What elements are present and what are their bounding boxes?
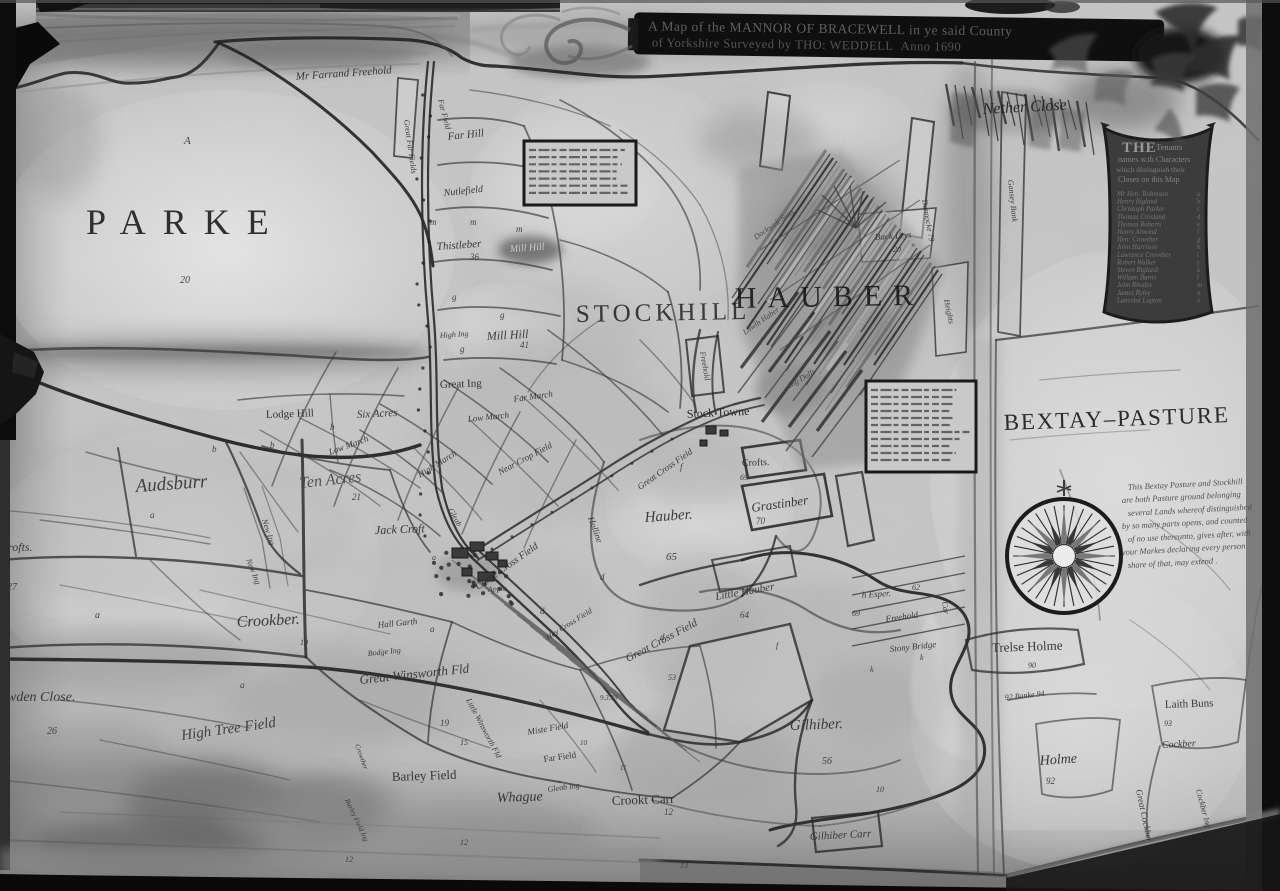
svg-text:Christoph Parker: Christoph Parker [1117, 206, 1165, 213]
svg-text:69: 69 [740, 473, 748, 482]
svg-text:g: g [1197, 237, 1201, 244]
svg-text:Hen: Crowther: Hen: Crowther [1116, 237, 1158, 244]
svg-text:h: h [1197, 244, 1201, 251]
svg-text:d: d [540, 606, 545, 616]
svg-text:HAUBER: HAUBER [735, 279, 925, 315]
svg-text:Henry Bigland: Henry Bigland [1116, 199, 1158, 206]
svg-text:THE: THE [1122, 140, 1157, 156]
svg-text:b: b [212, 444, 217, 454]
svg-text:Henry Almond: Henry Almond [1116, 229, 1157, 236]
svg-text:36: 36 [469, 252, 480, 262]
svg-text:d: d [600, 572, 605, 582]
svg-text:i: i [1197, 252, 1199, 259]
svg-text:STOCKHILL: STOCKHILL [576, 298, 751, 328]
svg-text:g: g [452, 292, 457, 302]
svg-text:a: a [240, 680, 245, 690]
svg-text:g: g [500, 310, 505, 320]
svg-text:19: 19 [440, 718, 450, 728]
svg-text:k: k [870, 665, 874, 674]
svg-text:12: 12 [664, 807, 674, 817]
svg-text:m: m [516, 224, 523, 234]
svg-text:12: 12 [345, 855, 353, 864]
svg-text:James Ryley: James Ryley [1117, 290, 1152, 297]
svg-text:l: l [1197, 275, 1199, 282]
svg-text:Robert Walker: Robert Walker [1116, 259, 1157, 266]
svg-text:a: a [430, 624, 435, 634]
svg-text:27: 27 [7, 582, 18, 593]
svg-text:93: 93 [1164, 719, 1172, 728]
svg-text:k: k [920, 653, 924, 662]
svg-text:which distinguish their: which distinguish their [1116, 165, 1185, 174]
svg-text:a: a [95, 610, 100, 621]
svg-text:Cockber: Cockber [1162, 738, 1197, 751]
svg-text:Crookt Carr: Crookt Carr [612, 791, 676, 808]
svg-text:64: 64 [740, 610, 750, 620]
svg-text:A: A [183, 135, 191, 147]
svg-text:41: 41 [520, 340, 529, 350]
svg-text:13: 13 [680, 861, 688, 870]
svg-text:9.3.38: 9.3.38 [600, 694, 618, 702]
svg-text:Gilhiber.: Gilhiber. [790, 716, 843, 734]
svg-text:j: j [1196, 259, 1199, 266]
svg-text:m: m [430, 217, 437, 227]
svg-text:m: m [1197, 282, 1203, 289]
svg-text:h Esper.: h Esper. [861, 588, 891, 600]
svg-text:Crofts.: Crofts. [0, 540, 33, 554]
svg-text:Jack Croft: Jack Croft [375, 521, 426, 537]
svg-text:10: 10 [876, 785, 884, 794]
svg-text:Laith Buns: Laith Buns [1165, 697, 1214, 711]
svg-text:m: m [470, 217, 477, 227]
svg-text:Trelse Holme: Trelse Holme [992, 638, 1063, 655]
svg-text:k: k [1197, 267, 1201, 274]
svg-text:owden Close.: owden Close. [0, 690, 75, 705]
svg-text:70: 70 [756, 516, 766, 526]
svg-text:Hauber.: Hauber. [643, 507, 693, 526]
svg-text:g: g [460, 344, 465, 354]
svg-text:Whague: Whague [497, 789, 543, 806]
svg-text:20: 20 [893, 245, 901, 254]
svg-text:John Rhodes: John Rhodes [1117, 282, 1152, 289]
svg-text:10: 10 [580, 739, 588, 747]
svg-text:n: n [1197, 290, 1201, 297]
svg-text:d: d [660, 632, 665, 642]
svg-text:Six Acres: Six Acres [357, 407, 398, 421]
svg-text:11: 11 [620, 764, 626, 772]
svg-text:a: a [150, 510, 155, 520]
svg-text:65: 65 [666, 551, 678, 563]
svg-text:19: 19 [300, 638, 308, 647]
svg-text:62: 62 [912, 583, 920, 592]
svg-text:Lancelot Lupton: Lancelot Lupton [1116, 297, 1162, 304]
svg-text:Steven Bigland: Steven Bigland [1117, 267, 1159, 274]
svg-text:a: a [432, 553, 436, 562]
svg-text:21: 21 [352, 492, 361, 502]
svg-text:53: 53 [668, 673, 676, 682]
svg-text:Thomas Roberts: Thomas Roberts [1117, 221, 1162, 228]
svg-text:e: e [1197, 221, 1200, 228]
svg-text:Great Ing: Great Ing [440, 378, 483, 391]
svg-text:c: c [1197, 206, 1200, 213]
svg-text:Lawrence Crowther: Lawrence Crowther [1116, 252, 1171, 259]
svg-text:Apple: Apple [487, 584, 508, 594]
svg-text:b: b [1197, 199, 1201, 206]
svg-text:56: 56 [822, 756, 832, 767]
svg-text:Crookber.: Crookber. [236, 611, 300, 631]
svg-text:Thomas Crosland: Thomas Crosland [1117, 214, 1166, 221]
svg-text:a: a [1197, 191, 1200, 198]
svg-text:15: 15 [460, 738, 468, 747]
svg-text:b: b [270, 440, 275, 450]
svg-text:12: 12 [460, 838, 468, 847]
svg-text:90: 90 [1028, 661, 1036, 670]
svg-text:Barley Field: Barley Field [392, 767, 458, 784]
svg-text:Lodge Hill: Lodge Hill [266, 407, 314, 421]
svg-text:o: o [1197, 297, 1201, 304]
svg-text:Closes on this Map: Closes on this Map [1118, 175, 1180, 184]
svg-text:Mr Hen: Robinson: Mr Hen: Robinson [1116, 191, 1169, 198]
svg-text:b: b [330, 422, 335, 432]
svg-text:d: d [1197, 214, 1201, 221]
svg-text:20: 20 [180, 275, 190, 286]
svg-text:John Harrison: John Harrison [1117, 244, 1157, 251]
svg-text:William Barns: William Barns [1117, 275, 1156, 282]
svg-text:names w.th Characters: names w.th Characters [1118, 155, 1190, 164]
svg-text:Holme: Holme [1038, 751, 1077, 769]
svg-text:PARKE: PARKE [86, 202, 286, 242]
svg-text:26: 26 [47, 726, 57, 737]
svg-text:92: 92 [1046, 776, 1056, 786]
svg-text:Crofts.: Crofts. [742, 457, 770, 469]
svg-text:69: 69 [852, 609, 860, 618]
